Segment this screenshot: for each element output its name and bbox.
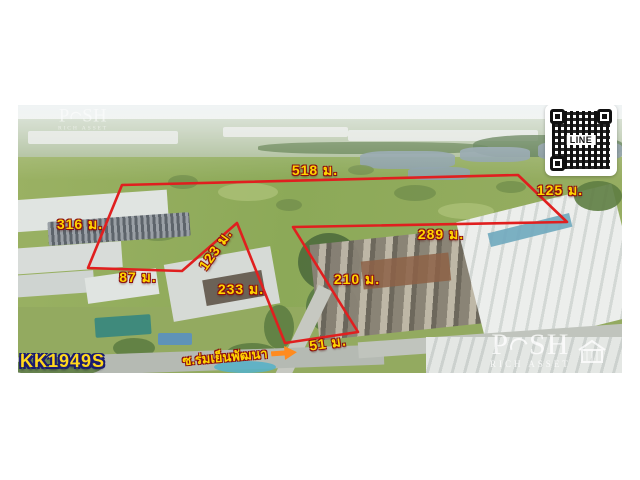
house-icon [577,338,607,364]
watermark-subtitle: RICH ASSET [490,359,571,369]
watermark-swirl-icon [507,335,531,359]
qr-line-label: LINE [567,135,596,145]
listing-code: KK1949S [20,351,105,372]
line-qr-code: LINE [545,105,617,176]
measure-87: 87 ม. [119,267,157,289]
watermark-letter-p: P [491,332,509,358]
measure-233: 233 ม. [218,279,264,301]
watermark-letter-p: P [59,108,70,124]
measure-289: 289 ม. [418,224,464,246]
measure-210: 210 ม. [334,269,380,291]
brand-watermark-bottom-right: P SH RICH ASSET [490,332,607,369]
measure-518: 518 ม. [292,160,338,182]
qr-finder-icon [550,109,565,124]
watermark-letters-sh: SH [82,108,107,124]
watermark-swirl-icon [69,110,84,125]
qr-finder-icon [597,109,612,124]
measure-125: 125 ม. [537,180,583,202]
measure-316: 316 ม. [57,214,103,236]
brand-watermark-top-left: P SH RICH ASSET [58,108,108,131]
screenshot-root: { "listing": { "code": "KK1949S" }, "qr"… [0,0,640,480]
aerial-photo: 518 ม. 125 ม. 316 ม. 289 ม. 123 ม. 87 ม.… [18,105,622,373]
watermark-letters-sh: SH [529,332,569,358]
watermark-subtitle: RICH ASSET [58,125,108,131]
qr-finder-icon [550,156,565,171]
